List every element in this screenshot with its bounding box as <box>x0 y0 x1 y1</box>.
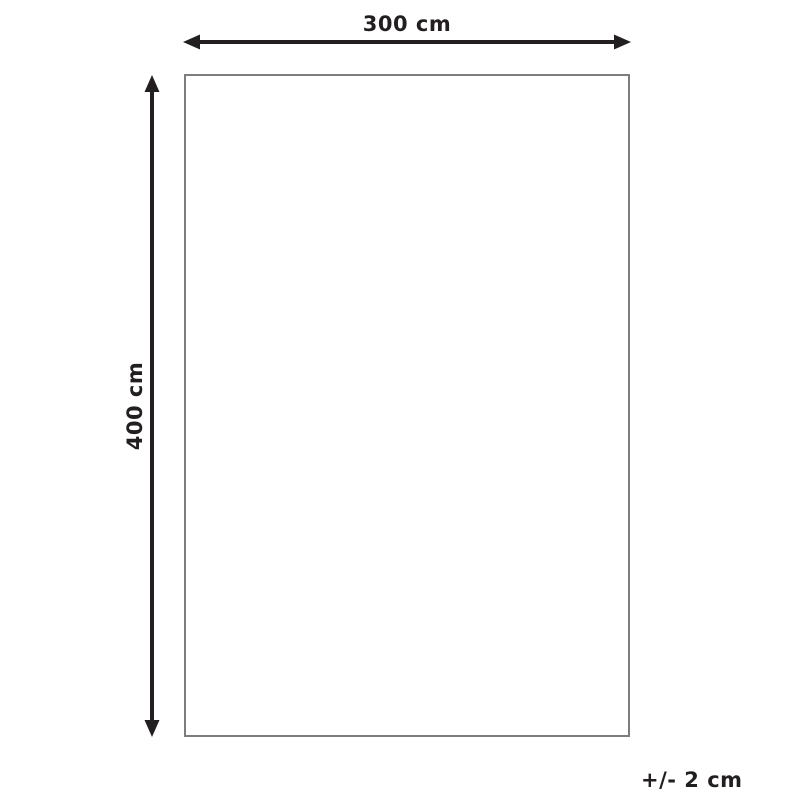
arrow-head-right <box>614 35 631 50</box>
tolerance-label: +/- 2 cm <box>641 768 743 792</box>
height-dimension-label: 400 cm <box>123 346 149 466</box>
product-outline-rectangle <box>184 74 630 737</box>
arrow-head-bottom <box>145 720 160 737</box>
arrow-head-left <box>183 35 200 50</box>
arrow-head-top <box>145 75 160 92</box>
horizontal-double-arrow-icon <box>183 32 631 52</box>
dimension-diagram: 300 cm 400 cm +/- 2 cm <box>0 0 800 800</box>
